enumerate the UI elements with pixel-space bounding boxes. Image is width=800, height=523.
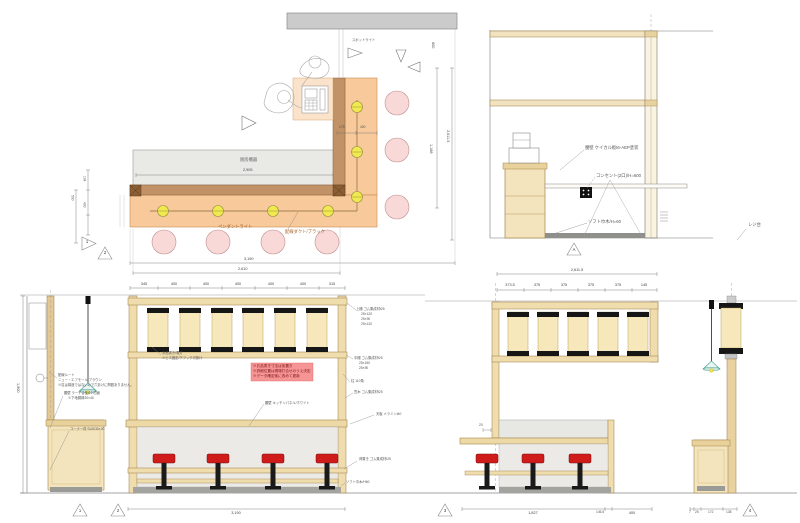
dim-elev3-w2: 146.5 <box>596 511 604 514</box>
register-cabinet <box>505 168 545 238</box>
top-dim-line <box>130 286 345 290</box>
menu-panels <box>147 308 328 352</box>
dim-seg: 145 <box>641 283 647 287</box>
dim-corner-b: 400 <box>360 126 366 129</box>
wall-panel <box>29 303 46 349</box>
kitchen-area <box>133 150 335 185</box>
panel-mount <box>727 296 736 303</box>
dim-left-a: 134 <box>82 176 85 182</box>
dim-seg: 375 <box>588 283 594 287</box>
footrest-rail <box>128 468 347 473</box>
post <box>650 302 658 362</box>
dim-kitchen-width: 2,905 <box>243 168 253 172</box>
dim-seg: 315 <box>329 282 335 286</box>
dim-side: 20 <box>479 424 483 427</box>
label-kitchen-panel: 腰壁 キッチンパネル/ホワイト <box>265 402 310 405</box>
dim-elev3-overall: 2,611.5 <box>571 268 583 272</box>
pendant-light-symbol <box>268 206 279 217</box>
dim-elev3-w1: 1,827 <box>528 511 538 515</box>
dim-elev4: 172 <box>708 511 714 514</box>
label-mid-shelf-size: 25×150 <box>359 362 370 365</box>
upper-shelf <box>128 298 347 305</box>
pos-register-elev <box>509 133 539 163</box>
pos-register-plan <box>302 86 328 113</box>
label-luggage-shelf: 荷置き ゴム集成材t25 <box>359 458 391 461</box>
elevation-2 <box>126 286 374 511</box>
dim-elev3-w3: 400 <box>629 511 635 515</box>
label-upper-shelf: 上棚 ゴム集成材t25 <box>356 308 385 311</box>
label-mid-shelf: 中棚 ゴム集成材t25 <box>354 357 383 360</box>
pass-shelf <box>545 184 687 188</box>
label-upper-shelf-size: 25×120 <box>361 313 372 316</box>
label-post: 柱 110角 <box>351 380 364 383</box>
pendant-light-symbol <box>323 206 334 217</box>
label-wiring-route-2: ニュー・エフモール/ブラウン <box>58 379 102 382</box>
cad-drawing-sheet: スポットライト 厨房機器 2,905 ペンダントライト 配線ダクト/ブラック 3… <box>0 0 800 523</box>
label-wiring-route-3: ※柱は構造ではないので穴あけに問題ありません。 <box>58 384 134 387</box>
label-menu-board-1: お品書き/電灯 <box>162 352 183 355</box>
dim-seg: 375 <box>615 283 621 287</box>
dim-seg: 373.5 <box>505 283 515 287</box>
menu-panels <box>507 312 649 356</box>
marker-1-label: 1 <box>73 509 87 513</box>
seg-dim-line <box>497 288 657 292</box>
pendant-light-symbol <box>352 102 363 113</box>
label-skirting: ソフト巾木/H=60 <box>588 220 621 225</box>
elevation-4 <box>690 283 757 516</box>
marker-3-label: 3 <box>438 509 452 513</box>
pendant-light-symbol <box>158 206 169 217</box>
end-bench <box>694 440 728 493</box>
marker-4-label: 4 <box>743 509 757 513</box>
dim-elev4: 138 <box>726 511 732 514</box>
marker-a-label: A <box>567 248 581 252</box>
dim-bottom-inner: 2,610 <box>238 267 248 271</box>
label-coping: 笠木 ゴム集成材t25 <box>354 391 383 394</box>
drawing-canvas <box>0 0 800 523</box>
dim-bottom-outer: 3,190 <box>244 257 254 261</box>
outlet-symbol <box>580 187 592 198</box>
dim-corner-a: 175 <box>339 126 345 129</box>
dim-seg: 400 <box>268 282 274 286</box>
post <box>338 296 346 493</box>
plinth <box>499 487 611 493</box>
dim-elev2-width: 3,190 <box>231 511 241 515</box>
pendant-lamp <box>703 300 720 372</box>
label-wainscot-wall: 腰壁 ケイカル板t6-AEP塗装 <box>585 146 638 151</box>
post <box>129 296 137 493</box>
counter-front <box>499 444 608 487</box>
dim-seg: 400 <box>171 282 177 286</box>
elevation-3 <box>438 272 658 516</box>
label-upper-shelf-size: 25×120 <box>361 323 372 326</box>
label-spotlight: スポットライト <box>352 39 375 42</box>
label-larch-wall-2: ※下地胴縁30×40 <box>68 397 94 400</box>
floor-strip <box>545 233 645 238</box>
counter-end-panel <box>608 420 614 493</box>
dim-left-c: 400 <box>82 202 85 208</box>
dim-seg: 345 <box>141 282 147 286</box>
menu-panel-side <box>721 308 741 348</box>
pendant-light-symbol <box>213 206 224 217</box>
mid-shelf <box>492 356 658 362</box>
counter-vertical <box>345 78 377 195</box>
marker-2-label: 2 <box>111 509 125 513</box>
label-wiring-duct: 配線ダクト/ブラック <box>285 230 325 235</box>
spotlight-symbols <box>348 48 420 72</box>
post <box>492 302 499 438</box>
dim-left-b: 500 <box>70 195 73 201</box>
label-mid-shelf-size: 25×90 <box>359 367 368 370</box>
overall-dim-line <box>497 272 657 276</box>
label-soft-skirting: ソフト巾木/H60 <box>346 481 369 484</box>
section-arrow <box>242 116 256 130</box>
plan-marker-2-label: 2 <box>98 251 112 255</box>
pendant-light-symbol <box>352 147 363 158</box>
label-counter-top: 天板 メラミンt40 <box>376 413 401 416</box>
dim-seg: 375 <box>534 283 540 287</box>
label-wiring-route-1: 配線ルート <box>58 374 74 377</box>
counter-screen <box>499 420 608 438</box>
wiring-symbol <box>36 374 44 382</box>
dim-seg: 400 <box>235 282 241 286</box>
counter-top <box>460 438 612 444</box>
label-pendant-light: ペンダントライト <box>218 225 252 230</box>
counter-top <box>126 420 347 427</box>
label-outlet: コンセント(2口)/H=600 <box>596 174 641 179</box>
label-register-stand: レジ台 <box>748 223 761 228</box>
note-line-3: ※データ確定後に改めて更新 <box>253 375 300 379</box>
elevation-1 <box>21 290 125 516</box>
dim-right-top: 600 <box>431 42 435 48</box>
pendant-light-symbol <box>352 192 363 203</box>
label-corner-trim: コーナー材 SUS/30×20 <box>70 428 104 431</box>
plan-view <box>74 13 457 275</box>
dim-seg: 400 <box>203 282 209 286</box>
label-kitchen-area: 厨房機器 <box>240 158 257 163</box>
label-upper-shelf-size: 25×90 <box>361 318 370 321</box>
upper-shelf <box>492 302 658 309</box>
existing-wall <box>287 13 457 29</box>
post <box>727 359 736 493</box>
bottom-dim-line <box>462 507 652 511</box>
label-larch-wall-1: 腰壁 ラーチ合板t12 四面 <box>64 392 100 395</box>
dim-elev4: 25 <box>695 511 699 514</box>
label-menu-board-2: ※ビス固定/下フック引掛け <box>162 357 202 360</box>
dim-right-outer: 2,611.5 <box>446 130 450 142</box>
dim-elev4: 7 <box>689 511 691 514</box>
counter-top-strip-v <box>333 78 345 185</box>
dim-right-inner: 1,188 <box>429 144 433 154</box>
plan-marker-1-label: 1 <box>80 240 94 244</box>
dim-seg: 400 <box>300 282 306 286</box>
counter-top-strip <box>130 185 345 195</box>
dim-elev1-height: 1,900 <box>16 383 20 393</box>
dim-seg: 375 <box>561 283 567 287</box>
